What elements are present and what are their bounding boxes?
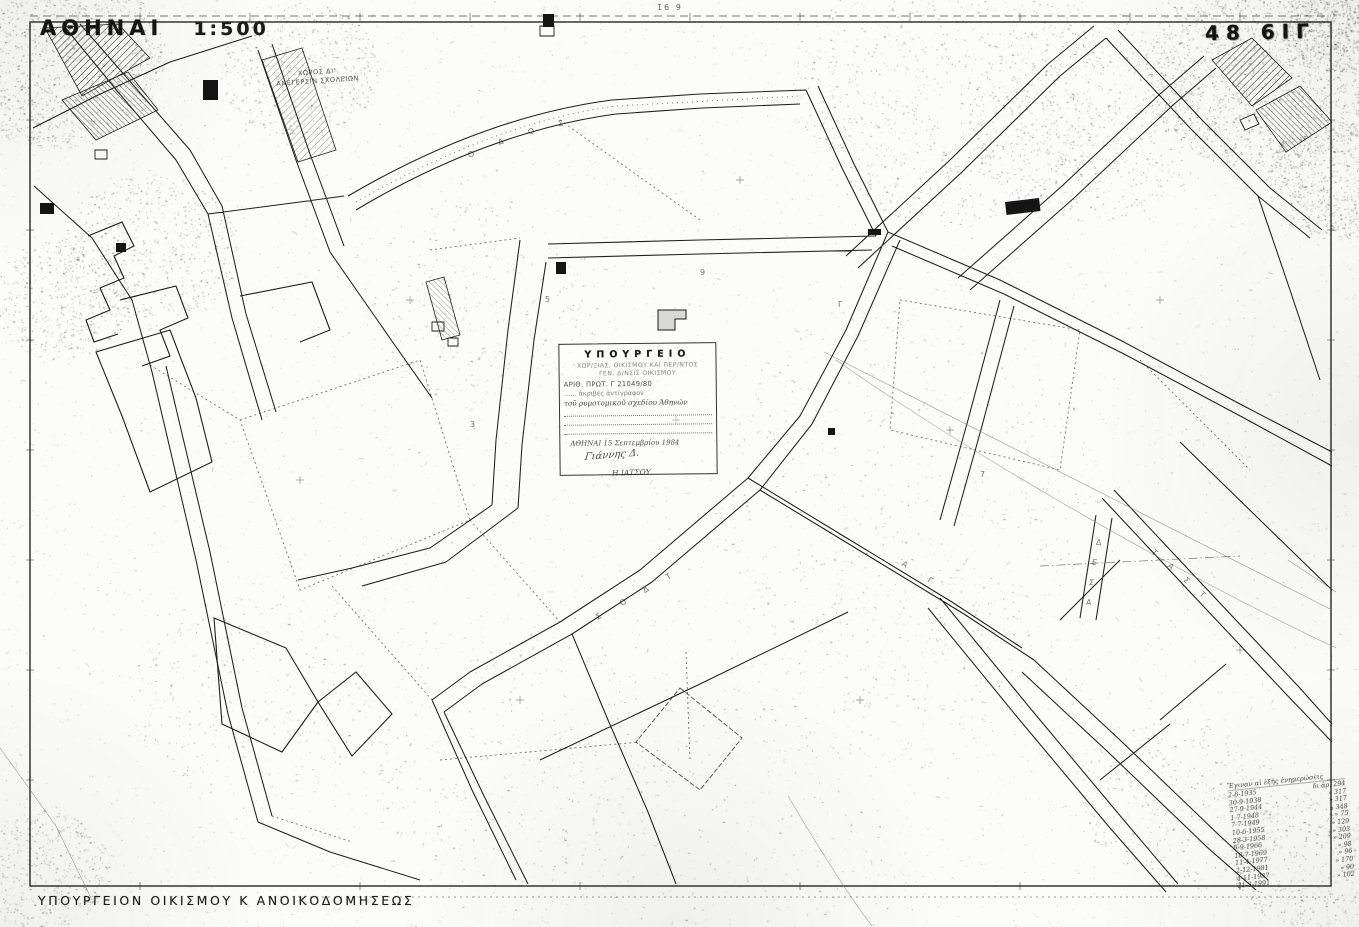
survey-crosses xyxy=(296,176,1244,704)
filled-buildings xyxy=(40,14,1041,435)
sheet-title: ΑΘΗΝΑΙ xyxy=(40,16,163,40)
street-letter: 5 xyxy=(545,295,550,304)
block-rhombus xyxy=(636,688,742,790)
stamp-line5: …… ἀκριβὲς ἀντίγραφον xyxy=(564,388,712,398)
stamp-line6: τοῦ ρυμοτομικοῦ σχεδίου Ἀθηνῶν xyxy=(564,397,712,408)
street-letter: 9 xyxy=(700,268,705,277)
street-letter: Γ xyxy=(838,300,842,309)
stamp-line3: ΓΕΝ. Δ/ΝΣΙΣ ΟΙΚΙΣΜΟΥ xyxy=(564,369,712,379)
sheet-number: 48 6ΙΓ xyxy=(1205,19,1316,45)
stamp-protocol-number: ΑΡΙΘ. ΠΡΩΤ. Γ 21049/80 xyxy=(564,379,712,389)
stamp-ministry-title: ΥΠΟΥΡΓΕΙΟ xyxy=(563,348,711,361)
boulevard-centerline xyxy=(356,96,800,202)
approval-stamp: ΥΠΟΥΡΓΕΙΟ ΧΩΡ/ΞΙΑΣ, ΟΙΚΙΣΜΟΥ ΚΑΙ ΠΕΡ/ΝΤΟ… xyxy=(558,342,717,476)
revision-rows: 2-8-1935δι ἀρ. 29430-9-1938» 31727-9-194… xyxy=(1228,780,1356,891)
scale-label: 1:500 xyxy=(193,18,268,40)
footer-caption: ΥΠΟΥΡΓΕΙΟΝ ΟΙΚΙΣΜΟΥ Κ ΑΝΟΙΚΟΔΟΜΗΣΕΩΣ xyxy=(38,893,414,908)
scanned-map-sheet: ΑΘΗΝΑΙ 1:500 48 6ΙΓ 6 91 ΧΩΡΟΣ ΔΙ' ΑΝΕΓΕ… xyxy=(0,0,1359,927)
stamp-rule xyxy=(564,424,712,435)
sheet-header: ΑΘΗΝΑΙ 1:500 xyxy=(40,16,269,40)
streets-dotted xyxy=(150,120,1250,842)
axis-dashdot xyxy=(1040,556,1240,566)
street-letter: 3 xyxy=(470,420,475,429)
hatched-parcels xyxy=(45,24,1332,340)
building-chains xyxy=(86,222,392,756)
stamp-clerk-name: Η ΙΑΤΣΟΥ xyxy=(612,467,651,477)
street-letter: 7 xyxy=(980,470,985,479)
edge-note: 6 91 xyxy=(655,2,681,11)
revision-table: Ἔγιναν αἱ ἑξῆς ἐνημερώσεις 2-8-1935δι ἀρ… xyxy=(1227,770,1356,890)
stepped-building xyxy=(658,310,686,330)
